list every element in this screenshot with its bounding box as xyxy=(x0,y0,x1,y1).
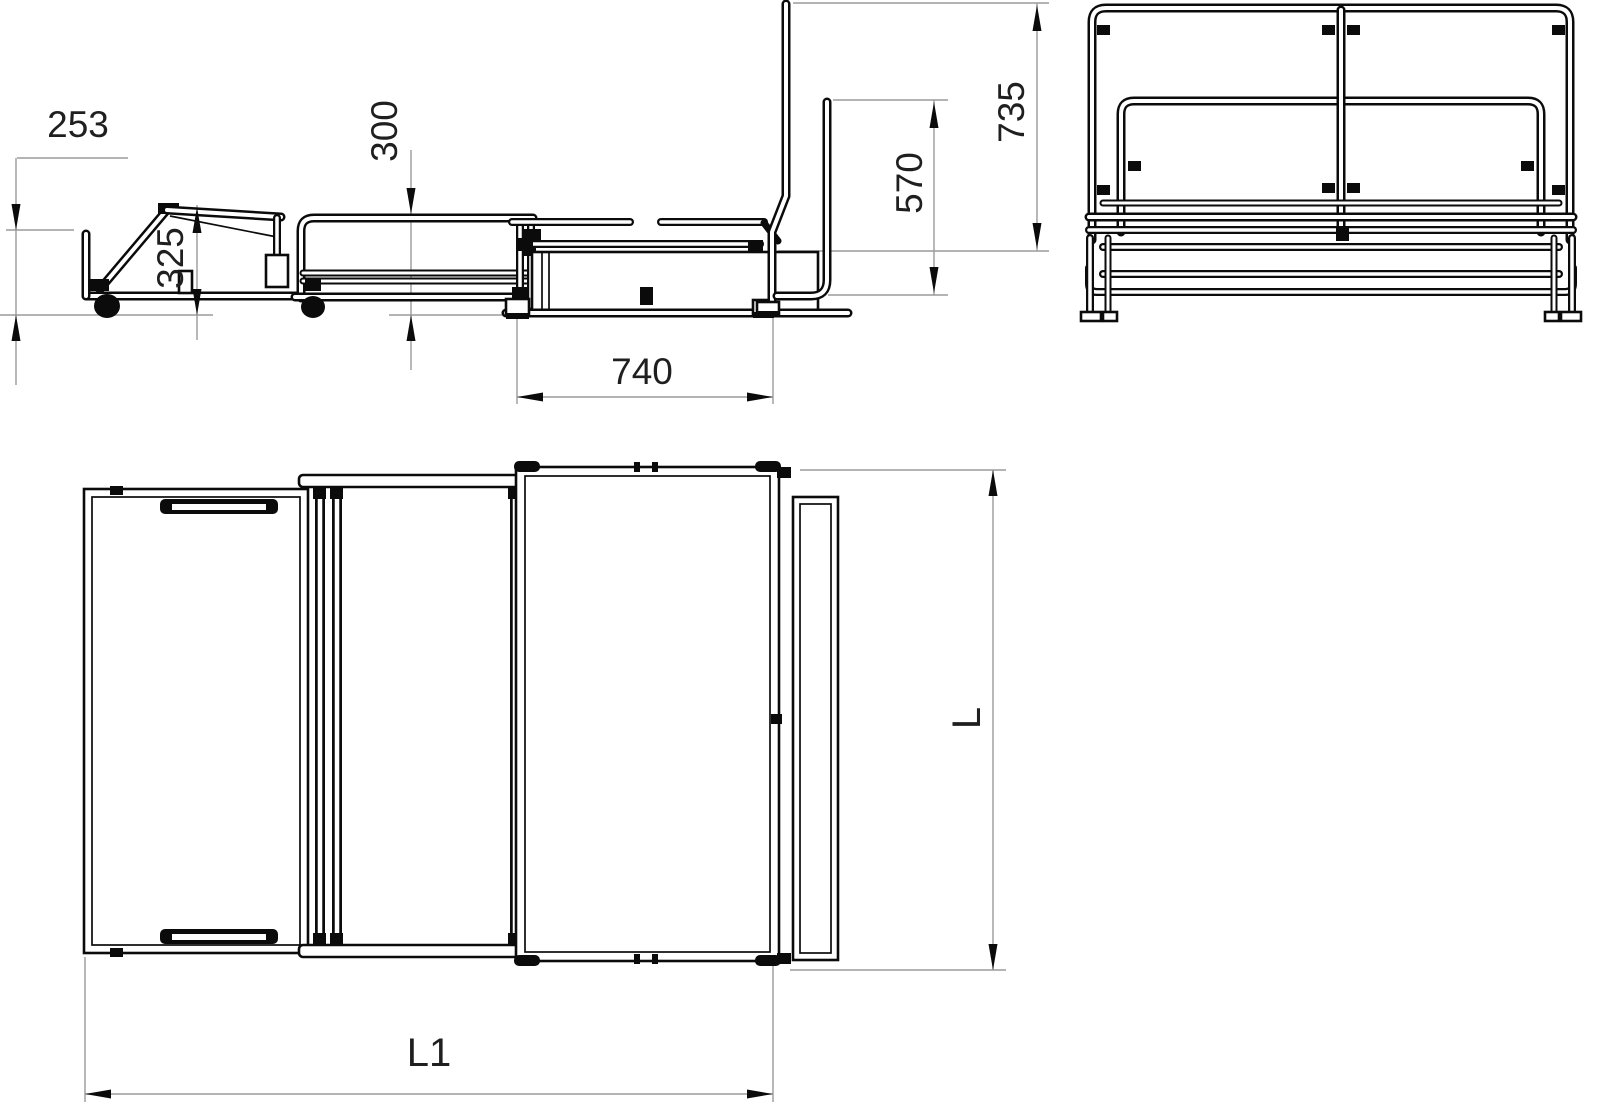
drawing-page: 253 325 300 740 570 735 xyxy=(0,0,1600,1110)
backrest-panel xyxy=(777,467,838,964)
front-foot xyxy=(506,299,529,315)
head-panel xyxy=(84,486,308,957)
hinge-clip xyxy=(512,287,527,298)
dim-label-300: 300 xyxy=(364,100,405,162)
foot-cap xyxy=(1545,312,1559,321)
post-foot xyxy=(266,255,288,287)
foot-cap xyxy=(1081,312,1101,321)
folded-mid-section xyxy=(295,218,541,318)
dim-label-740: 740 xyxy=(611,351,673,392)
dim-label-735: 735 xyxy=(991,81,1032,143)
folded-head-section xyxy=(86,203,296,318)
dim-label-253: 253 xyxy=(47,104,109,145)
rail-clip xyxy=(305,278,321,291)
strut-foot xyxy=(88,279,109,291)
foot-cap xyxy=(1561,312,1581,321)
front-view xyxy=(1081,8,1581,321)
seat-section xyxy=(506,222,848,319)
drawing-canvas: 253 325 300 740 570 735 xyxy=(0,0,1600,1110)
mid-panel xyxy=(299,475,538,957)
latch-stub xyxy=(640,287,653,305)
foot-cap xyxy=(1103,312,1117,321)
pivot-clip xyxy=(771,714,782,724)
dimension-L1: L1 xyxy=(85,1031,773,1099)
top-view: L L1 xyxy=(84,461,998,1099)
rail-clip xyxy=(748,240,763,252)
inner-frame xyxy=(1121,101,1541,232)
side-view: 253 325 300 740 570 735 xyxy=(12,4,1042,402)
dim-label-325: 325 xyxy=(150,227,191,289)
rail-clip xyxy=(516,238,533,251)
dimension-570: 570 xyxy=(889,102,939,293)
dim-label-570: 570 xyxy=(889,152,930,214)
dim-label-L1: L1 xyxy=(407,1031,452,1075)
seat-panel xyxy=(514,461,782,966)
caster-wheel xyxy=(301,296,325,318)
dimension-740: 740 xyxy=(517,351,773,402)
dimension-735: 735 xyxy=(991,5,1042,249)
corner-cap xyxy=(514,461,540,472)
dimension-L: L xyxy=(945,470,998,970)
dim-label-L: L xyxy=(945,707,989,729)
corner-cap xyxy=(514,955,540,966)
mounting-clips xyxy=(1097,25,1565,241)
base-rails xyxy=(1089,203,1573,292)
caster-wheel xyxy=(94,294,120,318)
